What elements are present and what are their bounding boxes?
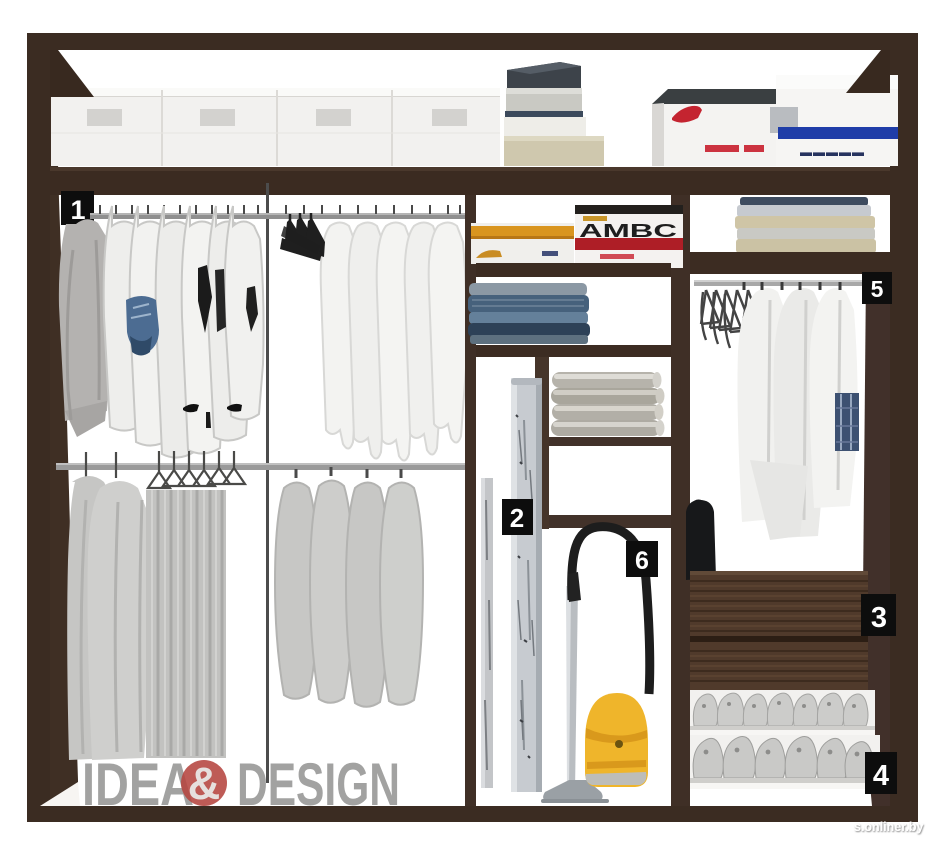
svg-text:3: 3: [871, 602, 887, 634]
svg-text:2: 2: [510, 503, 524, 533]
svg-text:4: 4: [873, 760, 889, 792]
svg-text:IDEA: IDEA: [82, 751, 194, 818]
svg-text:s.onliner.by: s.onliner.by: [854, 820, 924, 834]
svg-text:5: 5: [871, 276, 884, 302]
svg-text:&: &: [188, 758, 221, 809]
svg-text:DESIGN: DESIGN: [237, 751, 400, 818]
svg-text:▬▬▬▬▬: ▬▬▬▬▬: [800, 145, 865, 159]
svg-text:6: 6: [635, 547, 649, 575]
